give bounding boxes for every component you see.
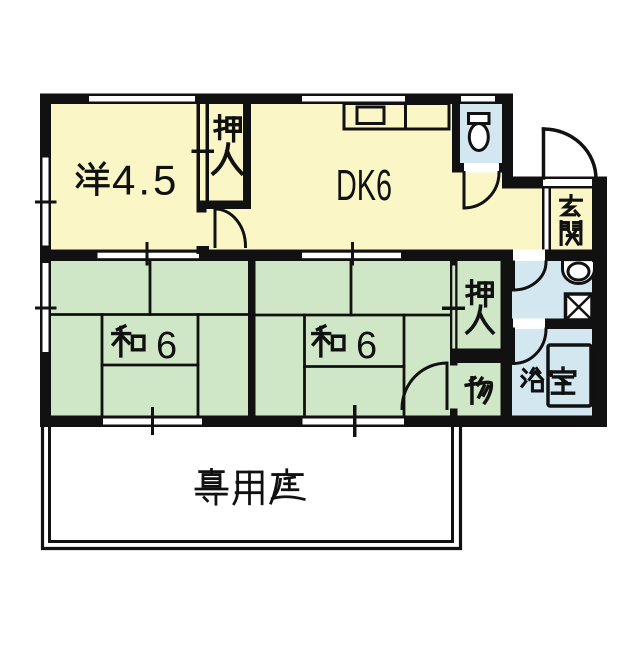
svg-text:6: 6 bbox=[356, 325, 377, 367]
svg-text:DK6: DK6 bbox=[336, 160, 392, 210]
svg-text:4.5: 4.5 bbox=[112, 157, 179, 204]
svg-text:6: 6 bbox=[156, 325, 177, 367]
